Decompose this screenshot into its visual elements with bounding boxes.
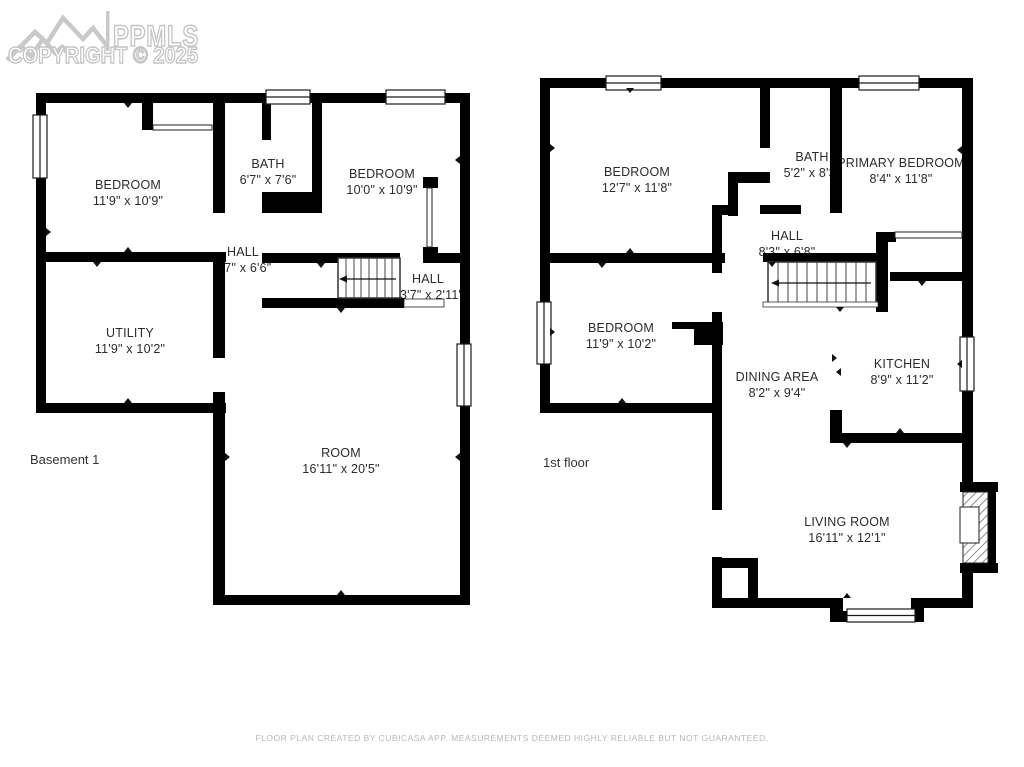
room-dims: 10'0" x 10'9" — [346, 182, 417, 198]
floor-plan-page: PPMLS COPYRIGHT © 2025 BEDROOM 11'9" x 1… — [0, 0, 1024, 767]
room-dims: 6'7" x 6'6" — [215, 260, 272, 276]
room-dims: 13'7" x 2'11" — [393, 287, 463, 303]
room-name: BEDROOM — [586, 320, 656, 336]
room-dims: 6'7" x 7'6" — [240, 172, 297, 188]
room-label-basement-bedroom-1: BEDROOM 11'9" x 10'9" — [93, 177, 163, 209]
room-name: PRIMARY BEDROOM — [837, 155, 965, 171]
room-label-first-dining-area: DINING AREA 8'2" x 9'4" — [736, 369, 819, 401]
room-dims: 8'4" x 11'8" — [837, 171, 965, 187]
room-label-first-bath: BATH 5'2" x 8'3" — [784, 149, 841, 181]
room-dims: 12'7" x 11'8" — [602, 180, 672, 196]
room-dims: 8'3" x 6'8" — [759, 244, 816, 260]
room-label-basement-utility: UTILITY 11'9" x 10'2" — [95, 325, 165, 357]
room-label-first-bedroom-1: BEDROOM 12'7" x 11'8" — [602, 164, 672, 196]
room-name: ROOM — [302, 445, 379, 461]
room-label-first-bedroom-2: BEDROOM 11'9" x 10'2" — [586, 320, 656, 352]
room-dims: 11'9" x 10'2" — [586, 336, 656, 352]
room-name: LIVING ROOM — [804, 514, 890, 530]
room-label-basement-hall-2: HALL 13'7" x 2'11" — [393, 271, 463, 303]
room-name: BEDROOM — [346, 166, 417, 182]
room-dims: 16'11" x 20'5" — [302, 461, 379, 477]
room-dims: 8'9" x 11'2" — [870, 372, 933, 388]
room-name: UTILITY — [95, 325, 165, 341]
floor-label-first-floor: 1st floor — [543, 455, 589, 470]
room-label-first-kitchen: KITCHEN 8'9" x 11'2" — [870, 356, 933, 388]
room-dims: 11'9" x 10'9" — [93, 193, 163, 209]
room-dims: 11'9" x 10'2" — [95, 341, 165, 357]
room-label-basement-hall-1: HALL 6'7" x 6'6" — [215, 244, 272, 276]
room-name: DINING AREA — [736, 369, 819, 385]
room-name: HALL — [215, 244, 272, 260]
room-name: BATH — [240, 156, 297, 172]
floor-label-basement: Basement 1 — [30, 452, 99, 467]
room-label-basement-bath: BATH 6'7" x 7'6" — [240, 156, 297, 188]
room-label-first-hall: HALL 8'3" x 6'8" — [759, 228, 816, 260]
room-name: BEDROOM — [602, 164, 672, 180]
room-dims: 16'11" x 12'1" — [804, 530, 890, 546]
room-name: KITCHEN — [870, 356, 933, 372]
room-name: BATH — [784, 149, 841, 165]
room-labels-layer: BEDROOM 11'9" x 10'9" BATH 6'7" x 7'6" B… — [0, 0, 1024, 767]
room-dims: 5'2" x 8'3" — [784, 165, 841, 181]
room-label-basement-bedroom-2: BEDROOM 10'0" x 10'9" — [346, 166, 417, 198]
room-name: HALL — [393, 271, 463, 287]
room-name: BEDROOM — [93, 177, 163, 193]
ppmls-logo: PPMLS COPYRIGHT © 2025 — [5, 6, 215, 68]
room-label-basement-room: ROOM 16'11" x 20'5" — [302, 445, 379, 477]
room-label-first-living-room: LIVING ROOM 16'11" x 12'1" — [804, 514, 890, 546]
logo-copyright-text: COPYRIGHT © 2025 — [8, 42, 198, 68]
room-name: HALL — [759, 228, 816, 244]
footer-disclaimer: FLOOR PLAN CREATED BY CUBICASA APP. MEAS… — [0, 733, 1024, 743]
room-dims: 8'2" x 9'4" — [736, 385, 819, 401]
room-label-first-primary-bedroom: PRIMARY BEDROOM 8'4" x 11'8" — [837, 155, 965, 187]
